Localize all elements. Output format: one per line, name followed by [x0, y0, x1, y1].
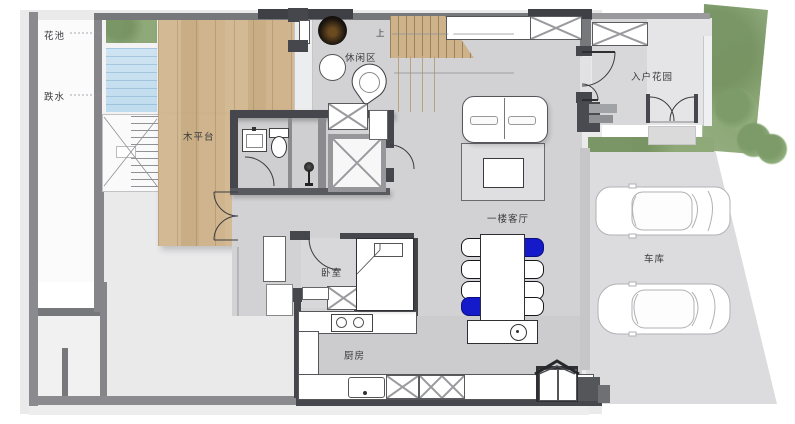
- garden-step: [648, 126, 696, 145]
- wall: [100, 282, 107, 396]
- kitchen-sink: [348, 377, 385, 398]
- boundary-fence: [237, 247, 239, 316]
- lower-left-room2: [38, 316, 100, 396]
- base-cabinet-double: [419, 375, 465, 399]
- lounge-chair-seat: [359, 72, 380, 93]
- pillow: [374, 243, 403, 257]
- storage-cabinet: [328, 103, 368, 130]
- outer-wall-left: [29, 12, 38, 406]
- sofa-cushion: [508, 116, 536, 125]
- stair-rails: [398, 56, 438, 112]
- side-corridor: [38, 20, 96, 310]
- coffee-table: [483, 158, 524, 188]
- apron: [29, 405, 589, 415]
- garden-glass-wall: [703, 36, 712, 126]
- shower-pole-icon: [308, 170, 310, 184]
- garden-top-wall: [592, 13, 710, 19]
- house-east-wall: [580, 148, 590, 370]
- stair-landing: [116, 146, 136, 158]
- waterfall-label: 跌水: [44, 89, 65, 103]
- wood-deck-upper: [158, 16, 294, 114]
- dining-chair: [522, 297, 544, 316]
- porch-step: [589, 104, 617, 113]
- kitchen-counter-left: [298, 331, 319, 377]
- side-table: [319, 54, 346, 81]
- storage-cabinet: [530, 16, 582, 40]
- kitchen-island: [467, 320, 538, 344]
- burner-icon: [353, 317, 364, 328]
- lower-left-room: [38, 282, 98, 308]
- door-opening: [580, 57, 591, 93]
- dining-chair: [522, 238, 544, 257]
- burner-icon: [336, 317, 347, 328]
- tree: [757, 134, 787, 164]
- wood-deck-label: 木平台: [183, 129, 215, 143]
- base-cabinet: [386, 375, 419, 399]
- storage-shelf: [263, 236, 286, 282]
- entry-garden-label: 入户花园: [631, 69, 673, 83]
- entry-step: [578, 377, 600, 401]
- wall: [318, 118, 326, 188]
- garage-slab: [586, 145, 786, 404]
- planter: [106, 18, 157, 43]
- sofa-cushion: [470, 116, 498, 125]
- kitchen-faucet-icon: [363, 391, 367, 395]
- cabinet: [369, 110, 388, 140]
- garden-cabinet: [592, 22, 648, 46]
- shelf: [302, 287, 329, 300]
- door-post: [646, 94, 650, 123]
- shower-base-icon: [305, 183, 313, 186]
- door-post: [694, 94, 698, 123]
- entry-step: [598, 385, 610, 403]
- fire-pit: [318, 16, 347, 45]
- dining-table: [480, 234, 525, 322]
- stairs-up-label: 上: [376, 27, 386, 39]
- sofa-divider: [504, 98, 505, 139]
- entry-door-panel: [539, 369, 558, 401]
- wall: [386, 168, 394, 182]
- entry-door-panel: [558, 369, 577, 401]
- faucet-icon: [252, 127, 256, 131]
- island-sink-dot: [516, 330, 519, 333]
- bathroom-sink-basin: [246, 134, 263, 148]
- bedroom-label: 卧室: [321, 265, 342, 279]
- outer-wall-bottom: [29, 396, 309, 405]
- leisure-area-label: 休闲区: [345, 50, 377, 64]
- living-room-label: 一楼客厅: [487, 211, 529, 225]
- floor-plan: 花池 跌水 木平台 休闲区 上 入户花园 一楼客厅 卧室 厨房 车库: [0, 0, 795, 424]
- door-jamb: [576, 46, 592, 56]
- porch-step: [589, 115, 613, 123]
- garage-label: 车库: [644, 251, 665, 265]
- wall: [230, 118, 238, 194]
- wall: [292, 288, 302, 302]
- storage-shelf: [266, 284, 293, 316]
- wall: [290, 231, 310, 240]
- wall-stub: [62, 348, 68, 396]
- waterfall-pool: [106, 48, 157, 112]
- wall: [288, 40, 308, 52]
- hall-cabinet: [446, 16, 532, 40]
- flower-bed-label: 花池: [44, 28, 65, 42]
- kitchen-label: 厨房: [344, 348, 365, 362]
- dining-chair: [522, 260, 544, 279]
- elevator: [328, 134, 386, 192]
- toilet: [271, 136, 287, 158]
